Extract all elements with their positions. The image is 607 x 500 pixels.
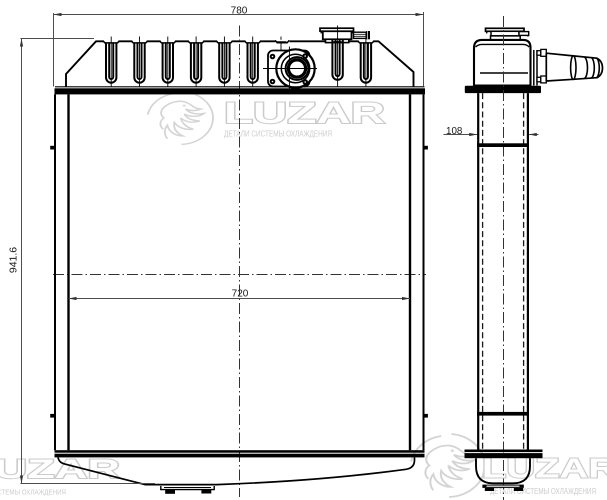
- svg-text:ДЕТАЛИ СИСТЕМЫ ОХЛАЖДЕНИЯ: ДЕТАЛИ СИСТЕМЫ ОХЛАЖДЕНИЯ: [224, 130, 332, 139]
- svg-text:720: 720: [232, 289, 249, 300]
- svg-text:941.6: 941.6: [8, 247, 20, 273]
- svg-text:780: 780: [231, 5, 248, 16]
- svg-text:LUZAR: LUZAR: [224, 97, 386, 130]
- svg-text:ДЕТАЛИ СИСТЕМЫ ОХЛАЖДЕНИЯ: ДЕТАЛИ СИСТЕМЫ ОХЛАЖДЕНИЯ: [490, 487, 596, 496]
- svg-text:ДЕТАЛИ СИСТЕМЫ ОХЛАЖДЕНИЯ: ДЕТАЛИ СИСТЕМЫ ОХЛАЖДЕНИЯ: [0, 488, 66, 497]
- svg-text:108: 108: [446, 126, 463, 137]
- svg-text:LUZAR: LUZAR: [0, 454, 120, 484]
